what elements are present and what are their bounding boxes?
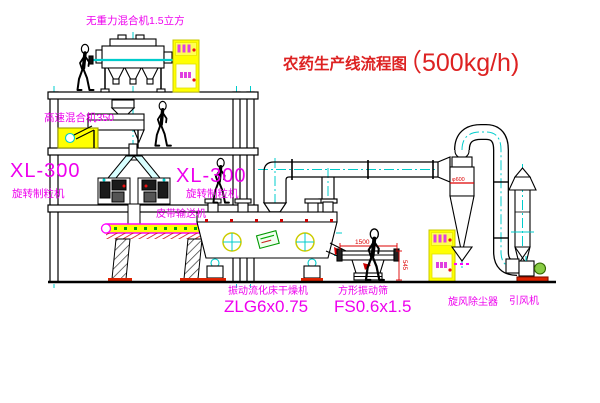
label-cyclone-name: 旋风除尘器 xyxy=(448,295,498,308)
floor-slab-middle xyxy=(48,148,258,155)
label-belt-conveyor: 皮带输送机 xyxy=(156,207,206,220)
diagram-title: 农药生产线流程图 xyxy=(282,54,407,73)
ducting xyxy=(264,157,450,221)
diagram-capacity: （500kg/h) xyxy=(397,49,519,77)
label-granulator-name-mid: 旋转制粒机 xyxy=(186,187,239,200)
dimension-screen-length: 1500 xyxy=(355,239,370,246)
label-granulator-model-mid: XL-300 xyxy=(176,165,247,187)
label-fan-name: 引风机 xyxy=(509,294,539,307)
label-dryer-name: 振动流化床干燥机 xyxy=(228,284,308,297)
worker-second-floor xyxy=(155,101,171,145)
flow-diagram-svg: 农药生产线流程图 （500kg/h) 无重力混合机1.5立方 高速混合机350 … xyxy=(0,0,600,403)
exhaust-stack xyxy=(509,168,536,263)
label-granulator-model-left: XL-300 xyxy=(10,160,81,182)
gravity-free-mixer xyxy=(89,35,179,92)
diagram-canvas: 农药生产线流程图 （500kg/h) 无重力混合机1.5立方 高速混合机350 … xyxy=(0,0,600,403)
fluid-bed-dryer xyxy=(197,199,337,282)
control-cabinet-top xyxy=(173,40,199,92)
label-gravity-mixer: 无重力混合机1.5立方 xyxy=(86,14,185,27)
label-screen-name: 方形振动筛 xyxy=(338,284,388,297)
floor-slab-top xyxy=(48,92,258,99)
control-cabinet-ground xyxy=(429,230,455,282)
label-granulator-name-left: 旋转制粒机 xyxy=(12,187,65,200)
high-speed-mixer xyxy=(58,100,144,155)
label-screen-model: FS0.6x1.5 xyxy=(334,297,412,316)
label-dryer-model: ZLG6x0.75 xyxy=(224,297,308,316)
floor-slab-lower xyxy=(48,205,258,212)
worker-top-floor xyxy=(78,44,94,90)
dimension-cyclone: φ600 xyxy=(452,177,465,183)
dimension-screen-height: 545 xyxy=(401,260,407,271)
label-high-speed-mixer: 高速混合机350 xyxy=(44,111,114,124)
